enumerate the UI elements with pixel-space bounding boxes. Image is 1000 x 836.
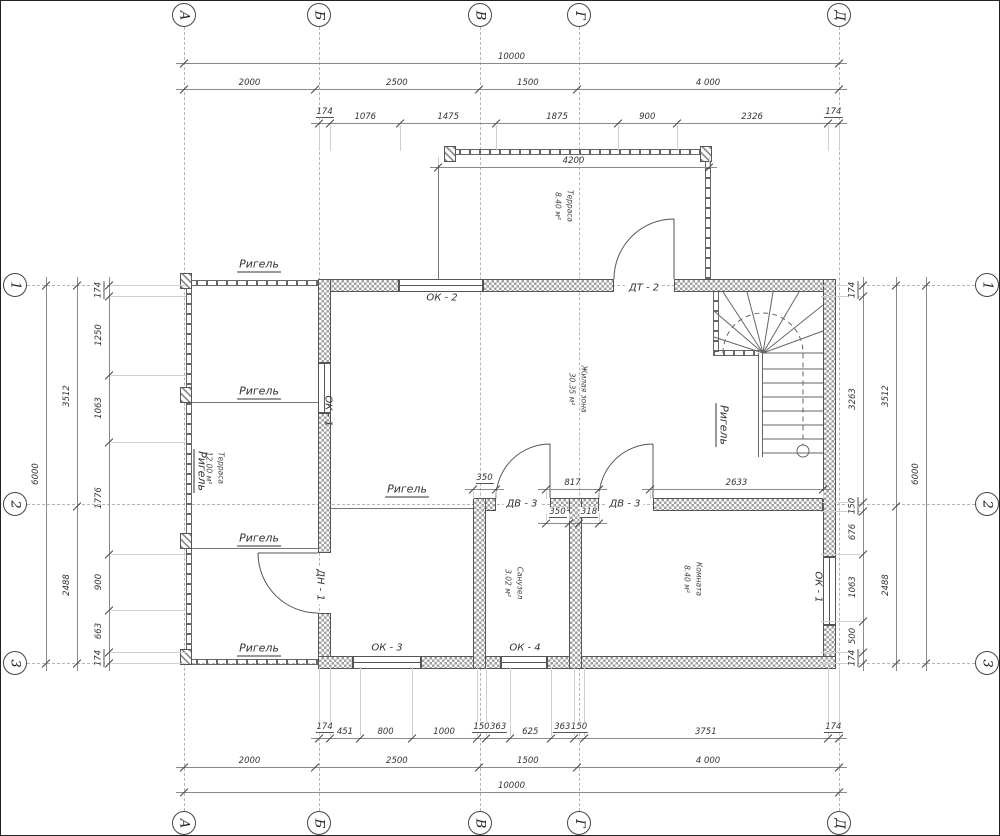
dimension-label: 150 (570, 722, 588, 733)
dimension-line (863, 277, 864, 671)
room-name: Терраса (564, 190, 576, 222)
dimension-label: 451 (337, 727, 353, 737)
axis-number: 3 (8, 659, 23, 667)
extension-line (111, 652, 186, 653)
wall-segment (547, 656, 836, 669)
dimension-label: 350 (475, 473, 493, 484)
axis-marker-col: Г (567, 3, 591, 27)
beam-label: Ригель (716, 403, 731, 447)
window-label: ОК - 2 (426, 293, 457, 304)
room-label: Санузел3.02 м² (502, 567, 525, 600)
stair-walk-end-circle (797, 445, 809, 457)
extension-line (111, 663, 186, 664)
dimension-label: 500 (848, 628, 858, 644)
window-symbol (823, 557, 836, 625)
extension-line (473, 491, 474, 499)
dimension-label: 174 (824, 722, 842, 733)
dimension-label: 4 000 (696, 78, 720, 88)
extension-line (496, 491, 497, 499)
wall-segment (318, 279, 331, 363)
door-label: ДТ - 2 (626, 283, 662, 294)
terrace-railing (186, 659, 318, 665)
dimension-line (896, 277, 897, 671)
extension-line (821, 554, 861, 555)
wall-segment (823, 279, 836, 557)
axis-number: 1 (8, 281, 23, 289)
railing-post (444, 146, 456, 162)
dimension-label: 1250 (94, 325, 104, 347)
axis-marker-col: В (468, 811, 492, 835)
axis-marker-col: Б (307, 811, 331, 835)
extension-line (330, 125, 331, 151)
wall-segment (674, 279, 836, 292)
dimension-label: 800 (377, 727, 393, 737)
extension-line (496, 125, 497, 151)
room-name: Жилая зона (578, 365, 590, 412)
dimension-label: 174 (848, 281, 859, 299)
extension-line (400, 125, 401, 151)
axis-letter: А (176, 10, 191, 20)
window-label: ОК - 1 (813, 571, 824, 602)
dimension-label: 10000 (498, 52, 525, 62)
extension-line (828, 125, 829, 151)
room-area: 12.00 м² (203, 452, 215, 485)
dimension-label: 350 (548, 507, 566, 518)
axis-number: 1 (980, 281, 995, 289)
grid-line-vertical (184, 27, 185, 811)
door-label: ДН - 1 (315, 566, 326, 604)
dimension-label: 817 (564, 478, 580, 488)
window-label: ОК - 4 (509, 643, 540, 654)
dimension-label: 174 (94, 648, 105, 666)
dimension-label: 1475 (437, 112, 459, 122)
railing-post (180, 533, 192, 549)
dimension-label: 2488 (62, 574, 72, 596)
dimension-label: 3263 (848, 388, 858, 410)
extension-line (569, 513, 570, 521)
dimension-line (311, 738, 847, 739)
wall-segment (473, 498, 486, 669)
dimension-label: 2000 (239, 756, 261, 766)
plan-linework-svg (1, 1, 1000, 836)
room-area: 30.35 м² (566, 365, 578, 412)
axis-letter: Г (571, 819, 586, 828)
window-label: ОК - 3 (371, 643, 402, 654)
grid-line-vertical (480, 27, 481, 811)
extension-line (599, 491, 600, 499)
axis-letter: Б (312, 818, 327, 828)
wall-segment (483, 279, 614, 292)
dimension-label: 4 000 (696, 756, 720, 766)
extension-line (650, 491, 651, 499)
dimension-line (642, 489, 831, 490)
axis-letter: Д (831, 10, 846, 21)
dimension-label: 1063 (94, 397, 104, 419)
dimension-label: 3512 (62, 385, 72, 407)
railing-post (700, 146, 712, 162)
room-label: Терраса12.00 м² (203, 452, 226, 485)
dimension-line (109, 277, 110, 671)
wall-segment (318, 656, 353, 669)
stair-stringer (758, 353, 763, 457)
axis-marker-col: Г (567, 811, 591, 835)
extension-line (823, 491, 824, 499)
window-symbol (399, 279, 483, 292)
extension-line (677, 125, 678, 151)
extension-line (618, 125, 619, 151)
extension-line (821, 621, 861, 622)
dimension-line (926, 277, 927, 671)
floor-plan-sheet: ААББВВГГДД112233100002000250015004 00017… (0, 0, 1000, 836)
room-label: Жилая зона30.35 м² (566, 365, 589, 412)
dimension-label: 174 (848, 648, 859, 666)
dimension-label: 900 (639, 112, 655, 122)
terrace-railing (713, 350, 763, 356)
room-area: 8.40 м² (552, 190, 564, 222)
beam-label: Ригель (237, 642, 281, 657)
dimension-line (311, 123, 847, 124)
door-label: ДВ - 3 (606, 499, 643, 510)
dimension-label: 3512 (881, 385, 891, 407)
dimension-label: 900 (94, 574, 104, 590)
axis-letter: А (176, 818, 191, 828)
extension-line (412, 667, 413, 736)
wall-segment (653, 498, 823, 511)
axis-marker-col: А (172, 3, 196, 27)
dimension-label: 1076 (354, 112, 376, 122)
axis-number: 3 (980, 659, 995, 667)
room-area: 8.40 м² (681, 562, 693, 596)
axis-letter: В (473, 10, 488, 20)
grid-line-vertical (579, 27, 580, 811)
axis-letter: В (473, 818, 488, 828)
extension-line (510, 667, 511, 736)
dimension-line (176, 63, 847, 64)
terrace-railing (705, 155, 711, 279)
dimension-label: 363 (489, 722, 507, 733)
railing-post (180, 387, 192, 403)
dimension-label: 174 (316, 722, 334, 733)
dimension-label: 2500 (386, 756, 408, 766)
beam-label: Ригель (385, 483, 429, 498)
axis-number: 2 (980, 500, 995, 508)
axis-marker-col: Д (827, 811, 851, 835)
terrace-railing (449, 149, 709, 155)
axis-marker-row: 1 (975, 273, 999, 297)
extension-line (111, 375, 186, 376)
dimension-label: 318 (580, 507, 598, 518)
dimension-line (176, 89, 847, 90)
dimension-line (77, 277, 78, 671)
axis-marker-row: 1 (3, 273, 27, 297)
extension-line (111, 554, 186, 555)
dimension-label: 174 (316, 107, 334, 118)
terrace-railing (186, 280, 318, 286)
beam-label: Ригель (237, 385, 281, 400)
axis-marker-col: Б (307, 3, 331, 27)
extension-line (111, 285, 186, 286)
dimension-label: 363 (553, 722, 571, 733)
extension-line (111, 610, 186, 611)
dimension-label: 1500 (517, 756, 539, 766)
dimension-label: 174 (94, 281, 105, 299)
dimension-label: 1000 (433, 727, 455, 737)
beam-label: Ригель (237, 258, 281, 273)
extension-line (111, 442, 186, 443)
axis-marker-col: Д (827, 3, 851, 27)
dimension-label: 10000 (498, 781, 525, 791)
wall-segment (421, 656, 501, 669)
dimension-label: 6000 (911, 463, 921, 485)
dimension-label: 1500 (517, 78, 539, 88)
room-name: Терраса (215, 452, 227, 485)
extension-line (551, 667, 552, 736)
extension-line (839, 125, 840, 151)
dimension-line (430, 167, 717, 168)
extension-line (111, 296, 186, 297)
axis-marker-col: А (172, 811, 196, 835)
thin-line (438, 157, 439, 279)
dimension-label: 663 (94, 623, 104, 639)
axis-marker-row: 2 (3, 492, 27, 516)
dimension-label: 1875 (546, 112, 568, 122)
dimension-label: 676 (848, 524, 858, 540)
extension-line (438, 157, 439, 165)
dimension-line (176, 767, 847, 768)
axis-letter: Г (571, 11, 586, 20)
beam-label: Ригель (237, 532, 281, 547)
axis-marker-row: 2 (975, 492, 999, 516)
dimension-label: 2000 (239, 78, 261, 88)
dimension-label: 150 (472, 722, 490, 733)
axis-marker-row: 3 (3, 651, 27, 675)
room-area: 3.02 м² (502, 567, 514, 600)
axis-number: 2 (8, 500, 23, 508)
thin-line (331, 508, 473, 509)
room-label: Комната8.40 м² (681, 562, 704, 596)
window-symbol (501, 656, 547, 669)
axis-letter: Д (831, 818, 846, 829)
dimension-label: 2326 (741, 112, 763, 122)
terrace-railing (186, 280, 192, 665)
wall-segment (318, 413, 331, 553)
dimension-label: 2488 (881, 574, 891, 596)
dimension-label: 6000 (31, 463, 41, 485)
dimension-line (46, 277, 47, 671)
axis-marker-row: 3 (975, 651, 999, 675)
terrace-railing (713, 292, 719, 352)
extension-line (709, 157, 710, 165)
extension-line (360, 667, 361, 736)
dimension-label: 625 (522, 727, 538, 737)
extension-line (599, 513, 600, 521)
dimension-label: 1063 (848, 576, 858, 598)
thin-line (192, 402, 318, 403)
door-label: ДВ - 3 (503, 499, 540, 510)
dimension-label: 1776 (94, 487, 104, 509)
axis-marker-col: В (468, 3, 492, 27)
dimension-label: 2633 (726, 478, 748, 488)
dimension-label: 2500 (386, 78, 408, 88)
axis-letter: Б (312, 10, 327, 20)
extension-line (546, 491, 547, 499)
dimension-label: 3751 (695, 727, 717, 737)
dimension-label: 174 (824, 107, 842, 118)
dimension-label: 4200 (563, 156, 585, 166)
room-name: Санузел (514, 567, 526, 600)
dimension-line (176, 792, 847, 793)
window-label: ОК - 1 (323, 395, 334, 426)
room-name: Комната (693, 562, 705, 596)
dimension-label: 150 (848, 497, 859, 515)
extension-line (319, 125, 320, 151)
railing-post (180, 273, 192, 289)
room-label: Терраса8.40 м² (552, 190, 575, 222)
thin-line (192, 548, 318, 549)
extension-line (546, 513, 547, 521)
